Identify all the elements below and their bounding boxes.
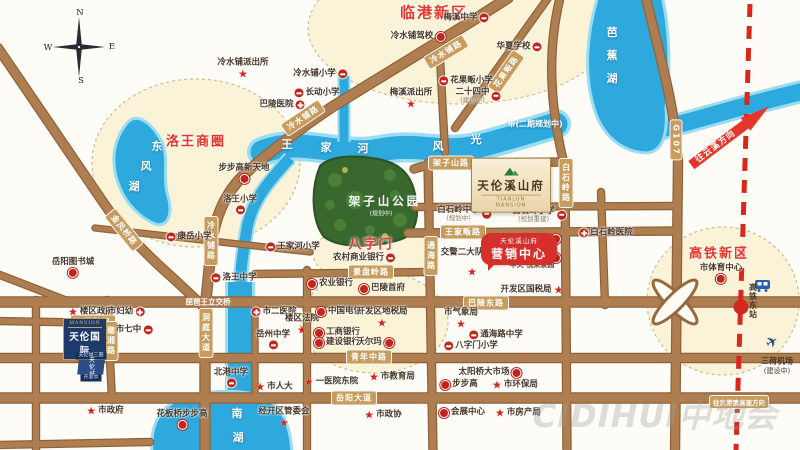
park-name-label: 架子山公园 xyxy=(349,193,422,209)
poi-label: 八字门小学 xyxy=(455,341,498,350)
water-label: 蕉 xyxy=(607,47,618,63)
map-poi: ★市人大 xyxy=(255,382,292,393)
poi-dot-icon xyxy=(435,32,445,42)
poi-label: 交警二大队 xyxy=(441,248,484,257)
poi-label: 会展中心 xyxy=(451,408,485,417)
water-label: 王 xyxy=(282,136,293,152)
hsr-station-dot xyxy=(734,300,749,315)
school-icon xyxy=(338,70,347,79)
water-label: 湖 xyxy=(233,429,244,445)
poi-label: 冷水铺驾校 xyxy=(391,32,434,41)
mountain-logo-icon xyxy=(501,167,521,176)
poi-label: 建设银行 xyxy=(326,338,360,347)
map-poi: ★市环保局 xyxy=(492,380,538,391)
map-poi: 梅溪中学 xyxy=(443,13,488,22)
star-icon: ★ xyxy=(238,69,248,80)
map-poi: ★市政协 xyxy=(364,410,401,421)
water-label: 南 xyxy=(232,405,243,421)
road-label: 青年中路 xyxy=(346,350,392,365)
map-poi: 建设银行 xyxy=(314,338,360,348)
star-icon: ★ xyxy=(377,318,387,329)
hospital-icon xyxy=(296,101,305,110)
poi-label: 华夏学校 xyxy=(496,42,530,51)
map-poi: 康岳小学 xyxy=(166,232,211,241)
poi-label: 花果畈小学 xyxy=(450,76,493,85)
school-icon xyxy=(235,206,244,215)
poi-label: 白石岭医院 xyxy=(590,228,633,237)
map-poi: ★经开区管委会 xyxy=(258,407,309,428)
poi-label: 市政协 xyxy=(376,410,402,419)
poi-dot-icon xyxy=(239,174,249,184)
map-poi: 花果畈小学 xyxy=(439,76,493,85)
school-icon xyxy=(166,233,175,242)
school-icon xyxy=(143,326,152,335)
poi-label: 梅溪派出所 xyxy=(390,88,433,97)
poi-label: 岳阳图书城 xyxy=(52,258,95,267)
poi-label: 市政府 xyxy=(98,406,124,415)
compass-north-label: N xyxy=(76,8,83,18)
star-icon: ★ xyxy=(406,99,416,110)
poi-label: 洛王小学 xyxy=(223,195,257,204)
poi-label: 北港中学 xyxy=(214,368,248,377)
water-label: 东 xyxy=(152,138,163,154)
poi-label: 步步高 xyxy=(452,380,478,389)
park-status-label: (规划中) xyxy=(370,209,393,218)
star-icon: ★ xyxy=(86,406,96,417)
marketing-name: 营销中心 xyxy=(491,245,547,262)
railway-dashed-line xyxy=(736,4,750,450)
poi-label: 市教育局 xyxy=(381,372,415,381)
poi-label: 一医院东院 xyxy=(316,377,359,386)
water-label: 湖 xyxy=(129,178,140,194)
map-poi: 农村商业银行 xyxy=(333,253,395,262)
water-label: 家 xyxy=(321,139,332,155)
poi-label: 市气象局 xyxy=(444,308,478,317)
map-poi: 市妇幼 xyxy=(108,307,145,316)
map-poi: 长动小学 xyxy=(294,88,339,97)
map-poi: 冷水铺派出所★ xyxy=(217,58,268,79)
map-poi: 花板桥步步高 xyxy=(156,410,207,430)
compass-east-label: E xyxy=(109,42,115,52)
poi-label: 开发区国税局 xyxy=(501,285,552,294)
star-icon: ★ xyxy=(68,307,78,318)
school-icon xyxy=(294,89,303,98)
poi-dot-icon xyxy=(716,274,726,284)
star-icon: ★ xyxy=(369,372,379,383)
poi-label: 巴陵医院 xyxy=(259,100,293,109)
school-icon xyxy=(492,91,501,100)
map-poi: ★一医院东院 xyxy=(304,377,358,388)
hospital-icon xyxy=(135,308,144,317)
marketing-center-balloon: 天伦溪山府 营销中心 xyxy=(481,233,557,265)
poi-dot-icon xyxy=(440,380,450,390)
water-label: 光 xyxy=(471,131,482,147)
poi-label: 市人大 xyxy=(267,382,293,391)
map-poi: 岳州中学 xyxy=(256,330,290,349)
poi-label: 康岳小学 xyxy=(177,232,211,241)
map-poi: 开发区国税局★ xyxy=(501,285,564,296)
star-icon: ★ xyxy=(297,325,307,336)
poi-label: 经开区管委会 xyxy=(258,407,309,416)
poi-dot-icon xyxy=(384,338,394,348)
map-poi: 步步高新天地 xyxy=(218,164,269,184)
poi-label: 农村商业银行 xyxy=(333,253,384,262)
poi-label: 市妇幼 xyxy=(108,307,134,316)
poi-dot-icon xyxy=(316,307,326,317)
poi-dot-icon xyxy=(68,268,78,278)
poi-label: 冷水铺派出所 xyxy=(217,58,268,67)
map-poi: 洛王小学 xyxy=(223,195,257,214)
road-label: 琵琶王立交桥 xyxy=(182,296,235,309)
water-label: 河 xyxy=(358,140,369,156)
poi-dot-icon xyxy=(177,420,187,430)
map-poi: 市体育中心 xyxy=(700,264,743,284)
poi-label: 市七中 xyxy=(116,325,142,334)
road-label: 架子山路 xyxy=(428,156,474,171)
poi-label: 二十四中(建设中) xyxy=(455,88,489,104)
parcel-label-3: 开发中 xyxy=(80,375,101,382)
poi-dot-icon xyxy=(314,328,324,338)
road-label: G107 xyxy=(670,119,683,160)
poi-label: 洛王中学 xyxy=(222,273,256,282)
school-icon xyxy=(266,243,275,252)
poi-label: 太阳桥大市场 xyxy=(458,368,509,377)
map-poi: 巴陵首府 xyxy=(359,284,405,294)
poi-label: 楼区法院 xyxy=(285,314,319,323)
poi-dot-icon xyxy=(359,284,369,294)
map-poi: 王家河小学 xyxy=(266,242,320,251)
hospital-icon xyxy=(579,229,588,238)
poi-dot-icon xyxy=(314,338,324,348)
school-icon xyxy=(533,43,542,52)
road-label: 通海路 xyxy=(424,236,439,276)
poi-label: 步步高新天地 xyxy=(218,164,269,173)
map-poi: 白石岭医院 xyxy=(579,228,633,237)
water-label: 芭 xyxy=(607,24,618,40)
road-label: 洞庭大道 xyxy=(199,308,214,358)
map-poi: ★开发区地税局 xyxy=(356,307,407,328)
hsr-station-label: 高铁东站 xyxy=(748,283,759,319)
poi-label: 市体育中心 xyxy=(700,264,743,273)
star-icon: ★ xyxy=(279,418,289,429)
project-card-xishanfu: 天伦溪山府 TIANLUN MANSION xyxy=(471,158,551,213)
poi-label: 农业银行 xyxy=(319,279,353,288)
school-icon xyxy=(386,254,395,263)
school-icon xyxy=(444,342,453,351)
water-label: 带(二期规划中) xyxy=(507,119,562,130)
map-poi: ★市政府 xyxy=(86,406,123,417)
map-poi: ★市气象局 xyxy=(444,308,478,329)
map-poi: 洛王中学 xyxy=(211,273,256,282)
compass-icon xyxy=(53,17,105,77)
road-label: 岳阳大道 xyxy=(331,391,377,406)
poi-label: 通海路中学 xyxy=(480,330,523,339)
airport-status-label: (建设中) xyxy=(764,366,790,376)
star-icon: ★ xyxy=(456,319,466,330)
star-icon: ★ xyxy=(554,285,564,296)
marketing-tag: 天伦溪山府 xyxy=(491,235,547,245)
school-icon xyxy=(211,274,220,283)
map-poi: 巴陵医院 xyxy=(259,100,304,109)
poi-dot-icon xyxy=(307,279,317,289)
poi-label: 沃尔玛 xyxy=(356,338,382,347)
school-icon xyxy=(268,341,277,350)
marketing-location-star: ★ xyxy=(467,267,477,278)
map-poi: 交警二大队 xyxy=(441,248,484,257)
project-name: 天伦溪山府 xyxy=(472,180,550,194)
road-label: 景盘岭路 xyxy=(348,265,394,280)
compass-west-label: W xyxy=(44,43,53,53)
map-poi: 通海路中学 xyxy=(469,330,523,339)
poi-sub-label: (规划重建) xyxy=(512,216,555,223)
school-icon xyxy=(439,77,448,86)
poi-dot-icon xyxy=(439,408,449,418)
map-poi: 冷水铺驾校 xyxy=(391,32,446,42)
map-poi: ★梅溪派出所 xyxy=(390,88,433,109)
water-label: 风 xyxy=(433,138,444,154)
district-title: 八字门 xyxy=(348,234,393,253)
poi-label: 市环保局 xyxy=(504,380,538,389)
school-icon xyxy=(480,14,489,23)
star-icon: ★ xyxy=(495,408,505,419)
road-label: 白石岭路 xyxy=(559,158,574,208)
map-poi: 北港中学 xyxy=(214,368,248,387)
hospital-icon xyxy=(251,308,260,317)
map-poi: 冷水铺小学 xyxy=(293,69,347,78)
map-poi: 华夏学校 xyxy=(496,42,541,51)
map-poi: 岳阳图书城 xyxy=(52,258,95,278)
poi-dot-icon xyxy=(512,368,522,378)
map-poi: 太阳桥大市场 xyxy=(458,368,521,378)
poi-label: 开发区地税局 xyxy=(356,307,407,316)
map-poi: 二十四中(建设中) xyxy=(455,88,500,104)
star-icon: ★ xyxy=(492,380,502,391)
district-title: 高铁新区 xyxy=(689,243,749,262)
compass-south-label: S xyxy=(78,76,84,86)
water-label: 风 xyxy=(141,158,152,174)
poi-sub-label: (规划中) xyxy=(437,215,480,222)
school-icon xyxy=(226,379,235,388)
poi-sub-label: (建设中) xyxy=(455,97,489,104)
airport-label: 三荷机场 xyxy=(761,356,793,367)
map-poi: 会展中心 xyxy=(439,408,485,418)
school-icon xyxy=(469,331,478,340)
map-poi: ★市教育局 xyxy=(369,372,415,383)
road-label: 王家畈路 xyxy=(440,225,486,240)
star-icon: ★ xyxy=(364,410,374,421)
map-poi: 中国电信 xyxy=(316,307,362,317)
star-icon: ★ xyxy=(304,377,314,388)
project-name-en: TIANLUN MANSION xyxy=(481,194,541,208)
mansion-brand: MANSION xyxy=(64,321,106,326)
map-poi: 步步高 xyxy=(440,380,478,390)
poi-label: 巴陵首府 xyxy=(371,284,405,293)
yueyang-location-map: N W E S 架子山公园 (规划中) 天伦溪山府 TIANLUN MANSIO… xyxy=(0,0,800,450)
map-poi: 沃尔玛 xyxy=(356,338,394,348)
poi-label: 长动小学 xyxy=(305,88,339,97)
water-label: 湖 xyxy=(607,70,618,86)
map-poi: 八字门小学 xyxy=(444,341,498,350)
poi-label: 冷水铺小学 xyxy=(293,69,336,78)
poi-label: 梅溪中学 xyxy=(443,13,477,22)
school-icon xyxy=(557,210,566,219)
district-title: 洛王商圈 xyxy=(166,131,226,150)
map-poi: 农业银行 xyxy=(307,279,353,289)
star-icon: ★ xyxy=(255,382,265,393)
watermark: CIDIHUI中地会 xyxy=(533,391,778,437)
map-poi: 市七中 xyxy=(116,325,153,334)
poi-label: 岳州中学 xyxy=(256,330,290,339)
poi-label: 王家河小学 xyxy=(277,242,320,251)
poi-label: 花板桥步步高 xyxy=(156,410,207,419)
